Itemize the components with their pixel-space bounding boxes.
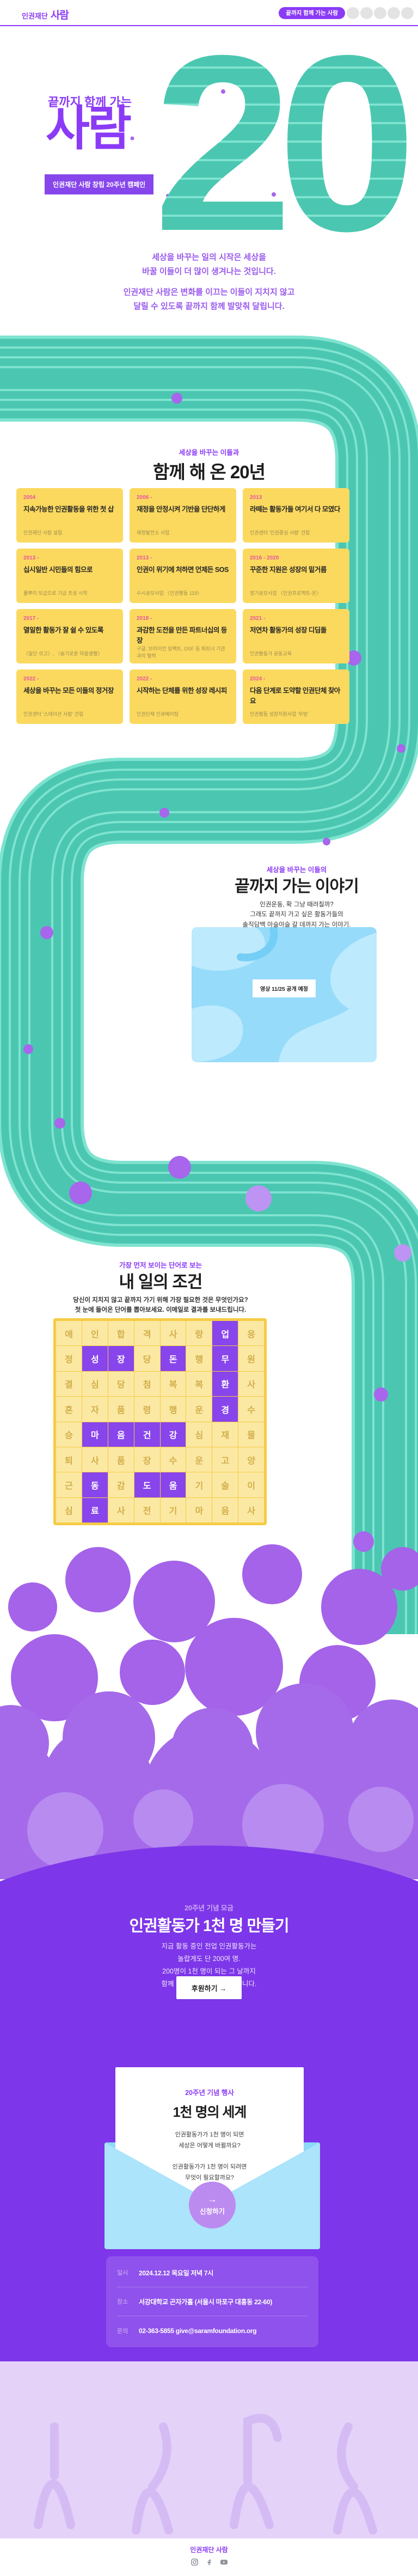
history-card-title: 저연차 활동가의 성장 디딤돌 (250, 624, 342, 635)
word-search-cell: 도 (134, 1472, 160, 1497)
history-card-year: 2016 - 2020 (250, 555, 342, 561)
word-search-cell: 품 (108, 1397, 134, 1421)
history-card-title: 재정을 안정시켜 기반을 단단하게 (137, 503, 229, 514)
history-card: 2013 -십시일반 시민들의 힘으로풀뿌리 모금으로 기금 조성 시작 (16, 549, 123, 603)
word-search-cell: 음 (108, 1422, 134, 1447)
history-card-title: 꾸준한 지원은 성장의 밑거름 (250, 564, 342, 574)
word-search-cell: 환 (212, 1372, 238, 1396)
apply-button-label: 신청하기 (200, 2206, 225, 2216)
track-dot (69, 1182, 92, 1204)
header-avatars (347, 7, 414, 19)
history-card: 2004지속가능한 인권활동을 위한 첫 삽인권재단 사람 설립 (16, 488, 123, 543)
history-card-title: 열일한 활동가 잘 쉴 수 있도록 (23, 624, 116, 635)
word-search-cell: 사 (161, 1321, 186, 1345)
word-search-cell: 전 (134, 1498, 160, 1523)
event-info-label: 일시 (117, 2268, 131, 2277)
story-video-card: 영상 11/25 공개 예정 (192, 927, 377, 1062)
page: 인권재단 사람 끝까지 함께 가는 사람 끝까지 함께 가는 사람 인권재단 사… (0, 0, 418, 2576)
cloud-circle (133, 1789, 193, 1849)
track-dot (323, 838, 330, 845)
word-search-cell: 승 (56, 1422, 82, 1447)
event-info-value: 02-363-5855 give@saramfoundation.org (139, 2327, 256, 2335)
word-search-cell: 퇴 (56, 1447, 82, 1472)
header: 인권재단 사람 끝까지 함께 가는 사람 (0, 0, 418, 26)
word-search-cell: 장 (108, 1346, 134, 1371)
word-search-cell: 돈 (161, 1346, 186, 1371)
cloud-circle (242, 1544, 302, 1604)
history-card: 2022 -시작하는 단체를 위한 성장 레시피인권단체 인큐베이팅 (130, 669, 236, 724)
history-title: 함께 해 온 20년 (0, 458, 418, 484)
word-search-cell: 마 (82, 1422, 108, 1447)
word-search-cell: 사 (108, 1498, 134, 1523)
history-card-title: 십시일반 시민들의 힘으로 (23, 564, 116, 574)
history-card-year: 2024 - (250, 676, 342, 682)
story-title: 끝까지 가는 이야기 (196, 873, 397, 897)
history-card-title: 세상을 바꾸는 모든 이들의 정거장 (23, 685, 116, 695)
avatar[interactable] (347, 7, 359, 19)
word-search-cell: 복 (186, 1372, 212, 1396)
word-search-cell: 감 (108, 1472, 134, 1497)
history-card-desc: 인권단체 인큐베이팅 (137, 710, 229, 717)
svg-text:20: 20 (161, 50, 407, 241)
word-search-cell: 심 (186, 1422, 212, 1447)
history-card-year: 2022 - (137, 676, 229, 682)
track-dot (353, 1531, 374, 1552)
word-search-cell: 사 (238, 1498, 264, 1523)
word-search-cell: 무 (212, 1346, 238, 1371)
word-search-cell: 랑 (186, 1321, 212, 1345)
facebook-icon[interactable] (205, 2558, 213, 2566)
track-dot (397, 744, 405, 753)
word-search-cell: 당 (134, 1346, 160, 1371)
history-card-year: 2018 - (137, 616, 229, 622)
word-search-cell: 재 (212, 1422, 238, 1447)
video-release-badge: 영상 11/25 공개 예정 (253, 979, 316, 997)
logo-prefix: 인권재단 (22, 10, 48, 21)
word-search-cell: 강 (161, 1422, 186, 1447)
word-search-cell: 기 (161, 1498, 186, 1523)
word-search-cell: 사 (238, 1372, 264, 1396)
word-search-cell: 첨 (134, 1372, 160, 1396)
puzzle-body: 당신이 지치지 않고 끝까지 가기 위해 가장 필요한 것은 무엇인가요? 첫 … (30, 1295, 291, 1316)
word-search-cell: 움 (161, 1472, 186, 1497)
event-info-value: 서강대학교 곤자가홀 (서울시 마포구 대흥동 22-60) (139, 2297, 272, 2306)
word-search-cell: 정 (56, 1346, 82, 1371)
word-search-cell: 애 (56, 1321, 82, 1345)
word-search-cell: 당 (108, 1372, 134, 1396)
hero-title: 사람 (46, 105, 130, 153)
cloud-circle (8, 1582, 57, 1631)
footer: 인권재단 사람 (0, 2538, 418, 2576)
history-grid: 2004지속가능한 인권활동을 위한 첫 삽인권재단 사람 설립2006 -재정… (16, 488, 349, 724)
word-search-cell: 심 (56, 1498, 82, 1523)
word-search-cell: 양 (238, 1447, 264, 1472)
event-info-panel: 일시2024.12.12 목요일 저녁 7시장소서강대학교 곤자가홀 (서울시 … (106, 2256, 318, 2347)
history-card-title: 인권이 위기에 처하면 언제든 SOS (137, 564, 229, 574)
word-search-cell: 수 (238, 1397, 264, 1421)
hero-campaign-badge: 인권재단 사람 창립 20주년 캠페인 (45, 174, 153, 194)
history-card: 2017 -열일한 활동가 잘 쉴 수 있도록〈일단 쉬고〉, 〈슬기로운 마음… (16, 609, 123, 663)
avatar[interactable] (388, 7, 400, 19)
history-card-year: 2013 - (23, 555, 116, 561)
history-card-desc: 수시공모사업 〈인권활동 119〉 (137, 589, 229, 596)
donate-button[interactable]: 후원하기 → (176, 1976, 242, 1999)
avatar[interactable] (374, 7, 386, 19)
intro-paragraph-2: 인권재단 사람은 변화를 이끄는 이들이 지치지 않고 달릴 수 있도록 끝까지… (0, 285, 418, 314)
history-card-desc: 풀뿌리 모금으로 기금 조성 시작 (23, 589, 116, 596)
history-card-desc: 〈일단 쉬고〉, 〈슬기로운 마음생활〉 (23, 650, 116, 657)
track-dot (171, 393, 182, 404)
history-card-title: 지속가능한 인권활동을 위한 첫 삽 (23, 503, 116, 514)
event-info-label: 문의 (117, 2327, 131, 2335)
word-search-cell: 응 (238, 1321, 264, 1345)
history-card-year: 2021 - (250, 616, 342, 622)
word-search-cell: 업 (212, 1321, 238, 1345)
word-search-cell: 장 (134, 1447, 160, 1472)
word-search-cell: 성 (82, 1346, 108, 1371)
word-search-cell: 인 (82, 1321, 108, 1345)
cloud-circle (348, 1787, 414, 1852)
track-dot (54, 1118, 65, 1129)
word-search-grid: 애인합격사랑업응정성장당돈행무원결심당첨복복환사혼자품령행운경수승마음건강심재물… (53, 1318, 267, 1525)
word-search-cell: 동 (82, 1472, 108, 1497)
instagram-icon[interactable] (190, 2558, 199, 2566)
outro-band (0, 2361, 418, 2538)
word-search-cell: 근 (56, 1472, 82, 1497)
word-search-cell: 행 (186, 1346, 212, 1371)
header-campaign-button[interactable]: 끝까지 함께 가는 사람 (279, 7, 345, 19)
word-search-cell: 혼 (56, 1397, 82, 1421)
track-dot (23, 1044, 33, 1054)
history-card: 2013 -인권이 위기에 처하면 언제든 SOS수시공모사업 〈인권활동 11… (130, 549, 236, 603)
track-dot (394, 1244, 411, 1262)
word-search-cell: 운 (186, 1397, 212, 1421)
history-card-desc: 인권센터 '스테이션 사람' 건립 (23, 710, 116, 717)
word-search-cell: 령 (134, 1397, 160, 1421)
history-card: 2018 -과감한 도전을 만든 파트너십의 등장구글, 브라이언 임팩트, O… (130, 609, 236, 663)
history-card-desc: 재정발전소 사업 (137, 529, 229, 536)
history-card: 2022 -세상을 바꾸는 모든 이들의 정거장인권센터 '스테이션 사람' 건… (16, 669, 123, 724)
avatar[interactable] (360, 7, 373, 19)
track-dot (374, 1387, 388, 1402)
word-search-cell: 건 (134, 1422, 160, 1447)
cloud-circle (65, 1547, 131, 1612)
history-card: 2024 -다음 단계로 도약할 인권단체 찾아요인권활동 성장지원사업 '무빙… (243, 669, 349, 724)
donate-eyebrow: 20주년 기념 모금 (0, 1902, 418, 1913)
word-search-cell: 료 (82, 1498, 108, 1523)
cloud-circle (120, 1640, 185, 1705)
history-card-desc: 구글, 브라이언 임팩트, OSF 등 파트너 기관과의 협력 (137, 645, 229, 659)
track-dot (131, 137, 134, 141)
history-card-year: 2004 (23, 495, 116, 501)
decorative-runner-glyphs (0, 2361, 418, 2538)
track-dot (159, 808, 169, 818)
history-card-title: 라떼는 활동가들 여기서 다 모였다 (250, 503, 342, 514)
word-search-cell: 물 (238, 1422, 264, 1447)
event-info-value: 2024.12.12 목요일 저녁 7시 (139, 2268, 213, 2277)
word-search-cell: 운 (186, 1447, 212, 1472)
word-search-cell: 품 (108, 1447, 134, 1472)
history-card-desc: 인권활동가 공동교육 (250, 650, 342, 657)
event-info-row: 문의02-363-5855 give@saramfoundation.org (117, 2316, 308, 2345)
event-info-label: 장소 (117, 2297, 131, 2306)
intro-paragraph-1: 세상을 바꾸는 일의 시작은 세상을 바꿀 이들이 더 많이 생겨나는 것입니다… (0, 251, 418, 279)
history-card: 2006 -재정을 안정시켜 기반을 단단하게재정발전소 사업 (130, 488, 236, 543)
word-search-cell: 기 (186, 1472, 212, 1497)
story-body: 인권운동, 확 그냥 때려칠까? 그래도 끝까지 가고 싶은 활동가들의 솔직담… (196, 900, 397, 930)
history-card: 2013라떼는 활동가들 여기서 다 모였다인권센터 '인권중심 사람' 건립 (243, 488, 349, 543)
history-card: 2021 -저연차 활동가의 성장 디딤돌인권활동가 공동교육 (243, 609, 349, 663)
logo-name: 사람 (51, 7, 69, 22)
anniversary-20-graphic: 20 (161, 50, 418, 241)
word-search-cell: 경 (212, 1397, 238, 1421)
event-info-row: 장소서강대학교 곤자가홀 (서울시 마포구 대흥동 22-60) (117, 2287, 308, 2316)
word-search-cell: 음 (212, 1498, 238, 1523)
history-card-title: 과감한 도전을 만든 파트너십의 등장 (137, 624, 229, 645)
arrow-right-icon: → (207, 2194, 217, 2204)
site-logo[interactable]: 인권재단 사람 (22, 7, 69, 22)
history-card-desc: 인권활동 성장지원사업 '무빙' (250, 710, 342, 717)
history-card-desc: 인권재단 사람 설립 (23, 529, 116, 536)
history-card-year: 2013 - (137, 555, 229, 561)
event-eyebrow: 20주년 기념 행사 (115, 2087, 304, 2097)
word-search-cell: 합 (108, 1321, 134, 1345)
history-card-year: 2017 - (23, 616, 116, 622)
word-search-cell: 원 (238, 1346, 264, 1371)
history-card-year: 2013 (250, 495, 342, 501)
history-card-title: 시작하는 단체를 위한 성장 레시피 (137, 685, 229, 695)
history-card: 2016 - 2020꾸준한 지원은 성장의 밑거름정기공모사업 〈인권프로젝트… (243, 549, 349, 603)
footer-logo: 인권재단 사람 (0, 2545, 418, 2554)
history-card-desc: 정기공모사업 〈인권프로젝트-온〉 (250, 589, 342, 596)
event-title: 1천 명의 세계 (115, 2102, 304, 2121)
track-dot (168, 1156, 191, 1179)
word-search-cell: 마 (186, 1498, 212, 1523)
event-info-row: 일시2024.12.12 목요일 저녁 7시 (117, 2258, 308, 2287)
history-card-year: 2006 - (137, 495, 229, 501)
apply-button[interactable]: → 신청하기 (189, 2182, 236, 2228)
history-card-desc: 인권센터 '인권중심 사람' 건립 (250, 529, 342, 536)
track-dot (40, 926, 53, 939)
history-eyebrow: 세상을 바꾸는 이들과 (0, 447, 418, 457)
word-search-cell: 격 (134, 1321, 160, 1345)
word-search-cell: 행 (161, 1397, 186, 1421)
word-search-cell: 자 (82, 1397, 108, 1421)
word-search-cell: 고 (212, 1447, 238, 1472)
word-search-cell: 복 (161, 1372, 186, 1396)
word-search-cell: 수 (161, 1447, 186, 1472)
word-search-cell: 심 (82, 1372, 108, 1396)
word-search-cell: 이 (238, 1472, 264, 1497)
word-search-cell: 사 (82, 1447, 108, 1472)
avatar[interactable] (401, 7, 414, 19)
word-search-cell: 결 (56, 1372, 82, 1396)
history-card-title: 다음 단계로 도약할 인권단체 찾아요 (250, 685, 342, 705)
donate-title: 인권활동가 1천 명 만들기 (0, 1913, 418, 1936)
history-card-year: 2022 - (23, 676, 116, 682)
word-search-cell: 술 (212, 1472, 238, 1497)
puzzle-title: 내 일의 조건 (30, 1268, 291, 1293)
track-dot (245, 1185, 272, 1211)
youtube-icon[interactable] (220, 2558, 228, 2566)
